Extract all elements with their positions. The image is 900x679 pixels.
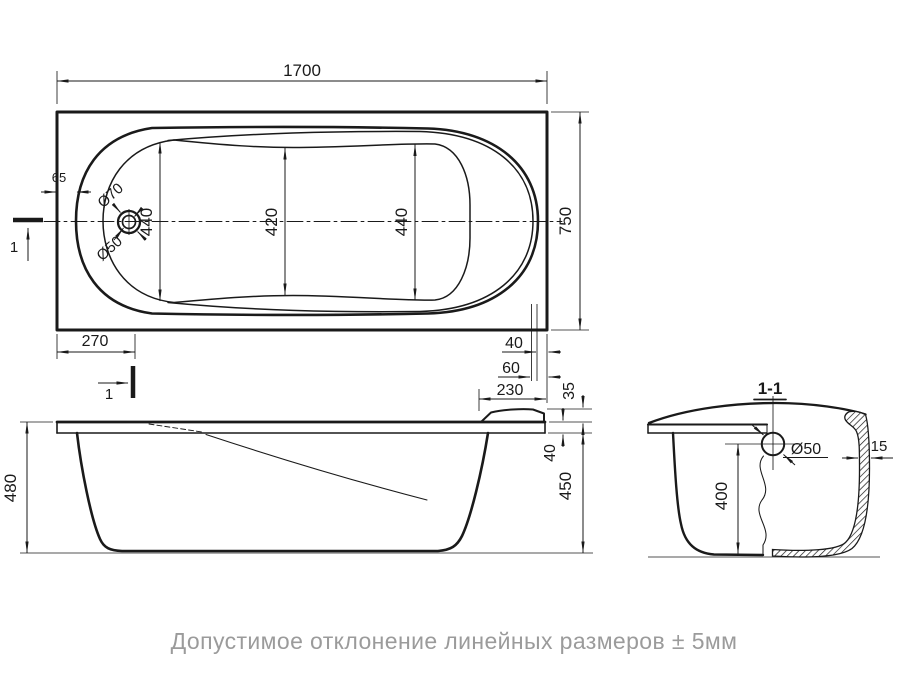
dim-rim-height: 40 [542, 444, 559, 462]
section-cut-label-left: 1 [10, 239, 18, 256]
dim-overall-height: 480 [1, 474, 20, 502]
break-line [759, 456, 766, 555]
dim-rim-offset: 65 [52, 170, 66, 185]
dim-overall-length: 1700 [283, 61, 321, 80]
hidden-edge-line [149, 424, 202, 432]
dim-headrest-height: 35 [561, 382, 578, 400]
dim-overflow-offset-b: 60 [502, 360, 520, 377]
tub-body-outline [77, 433, 488, 551]
top-view: Ø70 Ø50 65 1700 750 440 420 440 270 1 [10, 61, 592, 436]
drawing-canvas: Ø70 Ø50 65 1700 750 440 420 440 270 1 [0, 0, 900, 679]
dim-headrest-length: 230 [497, 382, 524, 399]
section-view: 1-1 Ø50 400 15 [648, 379, 893, 557]
bathtub-technical-drawing: Ø70 Ø50 65 1700 750 440 420 440 270 1 [0, 0, 900, 679]
tub-outer-rim-outline [57, 112, 547, 330]
label-overflow-diameter: Ø50 [791, 441, 821, 458]
dim-overall-width: 750 [556, 207, 575, 235]
section-crown-line [649, 403, 866, 423]
dim-bottom-width-left: 440 [137, 208, 156, 236]
dim-overflow-height: 400 [712, 482, 731, 510]
drain-outer-diameter-label: Ø70 [94, 180, 126, 212]
headrest-bump-outline [481, 409, 544, 422]
dim-overflow-offset-a: 40 [505, 335, 523, 352]
section-title: 1-1 [758, 379, 783, 398]
dim-bottom-width-middle: 420 [262, 208, 281, 236]
drain-inner-diameter-label: Ø50 [93, 233, 125, 265]
dim-drain-from-end: 270 [82, 333, 109, 350]
drain-outer-leader-a [113, 204, 121, 213]
side-view: 480 450 40 [1, 408, 593, 553]
dim-bottom-width-right: 440 [392, 208, 411, 236]
inner-slope-line [206, 435, 427, 501]
section-cut-label-bottom: 1 [105, 386, 113, 403]
tolerance-note: Допустимое отклонение линейных размеров … [171, 628, 738, 654]
dim-wall-thickness: 15 [871, 438, 888, 455]
dim-body-height: 450 [556, 472, 575, 500]
section-hatched-wall [773, 411, 870, 557]
